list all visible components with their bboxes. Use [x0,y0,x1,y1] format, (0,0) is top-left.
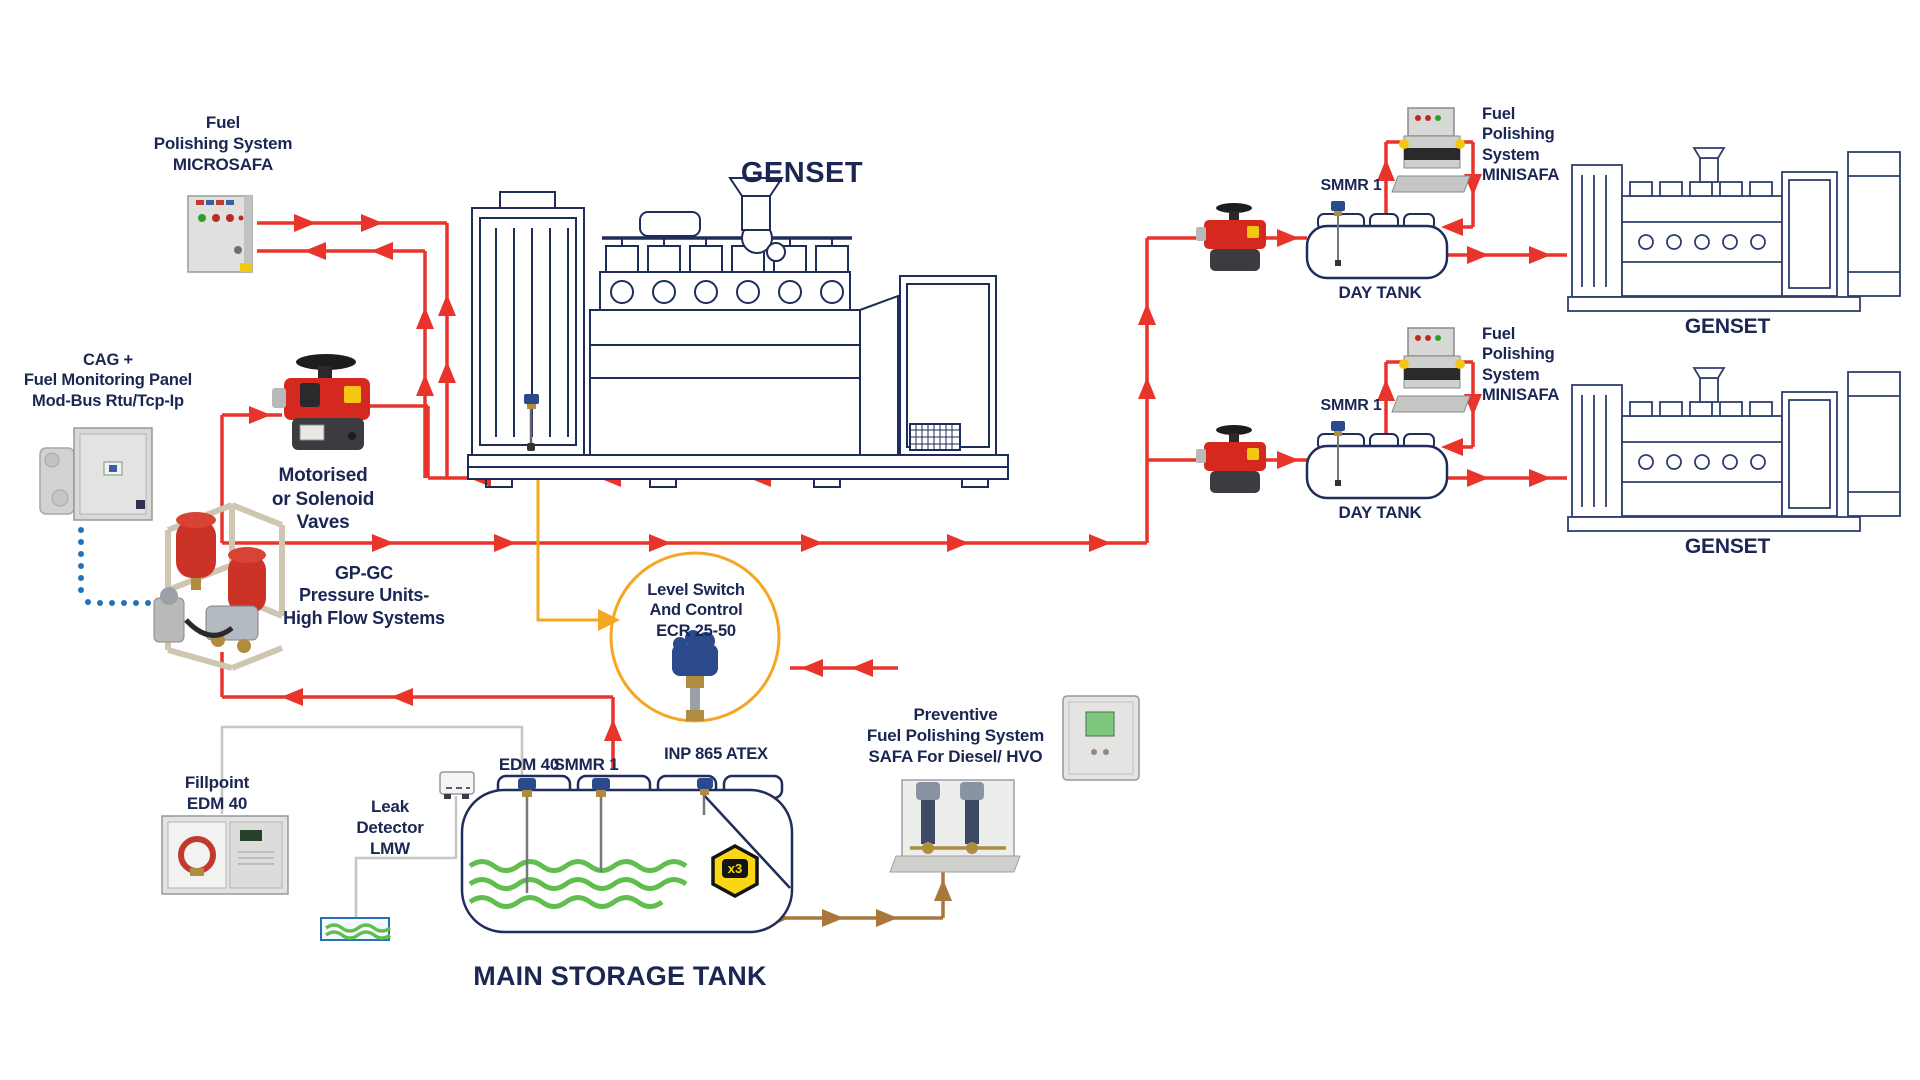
safa-panel-illustration [1063,696,1139,780]
label-fillpoint: Fillpoint EDM 40 [153,772,281,814]
fillpoint-illustration [162,816,288,894]
motorised-valve-daytank-top [1196,203,1266,271]
minisafa-unit-top [1392,108,1470,192]
cag-panel-illustration [40,428,152,520]
microsafa-panel-illustration [188,196,252,272]
genset-right-top-illustration [1568,148,1900,311]
label-microsafa: Fuel Polishing System MICROSAFA [118,112,328,175]
label-leak-detector: Leak Detector LMW [344,796,436,859]
day-tank-top-illustration [1307,201,1447,278]
label-smmr1-tank: SMMR 1 [549,754,623,775]
preventive-skid-illustration [890,780,1020,872]
label-smmr1-daytank-bottom: SMMR 1 [1312,396,1390,416]
label-fps-minisafa-bottom: Fuel Polishing System MINISAFA [1482,324,1594,406]
label-cag: CAG + Fuel Monitoring Panel Mod-Bus Rtu/… [8,350,208,411]
label-daytank-top: DAY TANK [1318,282,1442,303]
label-level-switch: Level Switch And Control ECR 25-50 [610,580,782,641]
title-main-storage-tank: MAIN STORAGE TANK [440,960,800,993]
title-genset-right-top: GENSET [1640,314,1815,340]
label-smmr1-daytank-top: SMMR 1 [1312,176,1390,196]
leak-detector-illustration [440,772,474,799]
motorised-valve-daytank-bottom [1196,425,1266,493]
containment-tray-illustration [321,918,390,940]
x3-badge: x3 [713,859,757,878]
fuel-system-diagram: Fuel Polishing System MICROSAFA GENSET C… [0,0,1920,1080]
label-fps-minisafa-top: Fuel Polishing System MINISAFA [1482,104,1594,186]
title-genset-main: GENSET [713,156,891,192]
label-valves: Motorised or Solenoid Vaves [242,464,404,535]
genset-right-bottom-illustration [1568,368,1900,531]
label-preventive: Preventive Fuel Polishing System SAFA Fo… [843,704,1068,767]
motorised-valve-illustration [272,354,370,450]
day-tank-bottom-illustration [1307,421,1447,498]
main-storage-tank-illustration [462,776,792,932]
title-genset-right-bottom: GENSET [1640,534,1815,560]
label-inp: INP 865 ATEX [650,744,782,764]
genset-illustration [468,178,1008,487]
label-gpgc: GP-GC Pressure Units- High Flow Systems [280,562,448,629]
minisafa-unit-bottom [1392,328,1470,412]
label-daytank-bottom: DAY TANK [1318,502,1442,523]
